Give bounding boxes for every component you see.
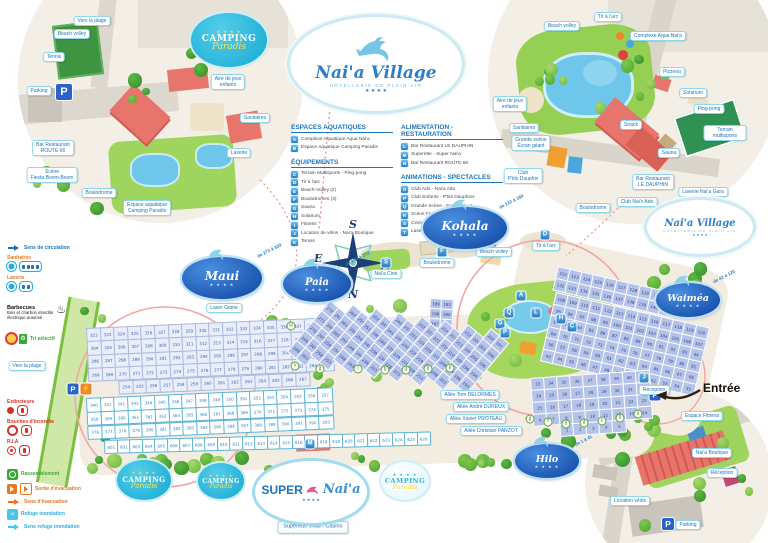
marker-g: G: [496, 320, 505, 329]
marker-l: L: [532, 309, 541, 318]
map-label: Espace Fitness: [681, 411, 723, 421]
naia-village-map: S E O N Nai'a Village HÔTELLERIE DE PLEI…: [0, 0, 768, 543]
zone-name: Kohala: [441, 219, 488, 233]
map-label: Laser Game: [206, 303, 242, 313]
tree: [646, 79, 656, 89]
pitch-cell: 357: [317, 387, 333, 402]
tree: [235, 451, 249, 465]
map-label: Bar Restaurant ROUTE 66: [32, 140, 74, 156]
tri-label: Tri sélectif: [30, 336, 55, 342]
legend-column-1: ESPACES AQUATIQUESAComplexe Aquatique Aq…: [291, 124, 393, 253]
row-letter: b: [381, 366, 390, 375]
sens-evacuation-arrow-icon: [7, 498, 21, 506]
marker-q: Q: [505, 309, 514, 318]
legend-letter-chip: N: [401, 160, 408, 167]
pitch-cell: 393: [318, 415, 334, 430]
legend-letter-chip: F: [291, 196, 298, 203]
map-label: Sanitaires: [509, 123, 539, 133]
recycle-bin-icon: ♻: [19, 334, 27, 344]
legend-section-title: ÉQUIPEMENTS: [291, 159, 393, 168]
pitch-cell: 55: [680, 381, 696, 397]
map-label: Tennis: [43, 52, 65, 62]
legend-item-label: Terrain Multisports - Ping-pong: [301, 171, 366, 176]
map-label: Sanitaires: [240, 113, 270, 123]
map-label: Club P'tits Dauphin: [504, 168, 543, 184]
camping-paradis-badge: ★ ★ ★ ★ CAMPING Paradis: [191, 13, 267, 67]
tree: [694, 490, 706, 502]
marker-h: H: [557, 315, 566, 324]
legend-item: IFitness: [291, 222, 393, 229]
map-label: Réception: [639, 385, 670, 395]
legend-section: ÉQUIPEMENTSCTerrain Multisports - Ping-p…: [291, 159, 393, 246]
tri-badge-icon: [7, 334, 16, 343]
legend-item-label: Tennis: [301, 239, 315, 244]
tree: [351, 452, 359, 460]
marker-m: M: [306, 440, 315, 449]
sortie-label: Sortie d'évacuation: [35, 486, 81, 492]
pitch-cell: 267: [295, 372, 311, 387]
map-label: Pizzeria: [659, 67, 685, 77]
super-stars: ★ ★ ★ ★: [302, 497, 320, 502]
tree: [174, 461, 188, 475]
legend-item: OClub Ado - Nai'a Ado: [401, 186, 503, 193]
map-label: Beach volley: [476, 247, 512, 257]
naia-script: Nai'a: [323, 482, 361, 497]
map-label: Snack: [620, 120, 642, 130]
map-label: Grande scène Écran géant: [511, 135, 550, 151]
marker-a: A: [517, 292, 526, 301]
zone-oval-maui: Maui★ ★ ★ ★: [182, 257, 262, 299]
legend-item: MSuperette - Super Nai'a: [401, 152, 503, 159]
bouche-incendie-icon: [21, 425, 32, 436]
badge-subtitle: Paradis: [131, 482, 157, 490]
legend-item-label: Tir à l'arc: [301, 180, 320, 185]
row-letter: c: [598, 417, 607, 426]
legend-letter-chip: G: [291, 205, 298, 212]
rassemblement-label: Rassemblement: [21, 471, 59, 477]
dolphin-swoosh-icon: [206, 247, 228, 261]
legend-section-title: ALIMENTATION - RESTAURATION: [401, 124, 503, 140]
legend-letter-chip: I: [291, 222, 298, 229]
sanitaires-icon: [7, 262, 16, 271]
sens-refuge-arrow-icon: [7, 523, 21, 531]
tree: [464, 458, 476, 470]
map-label: Tir à l'arc: [532, 241, 560, 251]
legend-letter-chip: R: [401, 212, 408, 219]
laverie-services-icons: [19, 281, 33, 292]
zone-stars: ★ ★ ★ ★: [453, 232, 478, 237]
camping-paradis-zone-badge: ★ ★ ★ ★ CAMPING Paradis: [198, 463, 244, 499]
legend-letter-chip: E: [291, 188, 298, 195]
camping-paradis-zone-badge: ★ ★ ★ ★ CAMPING Paradis: [117, 460, 171, 500]
legend-item-label: Espace Aquatique Camping Paradis: [301, 145, 378, 150]
zone-oval-hilo: Hilo★ ★ ★ ★: [515, 444, 579, 478]
legend-item: NBar Restaurant ROUTE 66: [401, 160, 503, 167]
zone-oval-paia: Paia★ ★ ★ ★: [283, 266, 351, 302]
map-label: Laverie Nai'a Gara: [678, 187, 728, 197]
legend-item: KTennis: [291, 239, 393, 246]
entrance-label: Entrée: [703, 381, 740, 395]
zone-stars: ★ ★ ★ ★: [535, 464, 560, 469]
legend-letter-chip: A: [291, 136, 298, 143]
legend-item-label: Sauna: [301, 205, 315, 210]
map-label: Ping-pong: [694, 104, 725, 114]
marker-j: J: [640, 374, 649, 383]
legend-item-label: Bar Restaurant LE DAUPHIN: [411, 144, 473, 149]
circulation-arrow-icon: [7, 244, 21, 252]
sens-evac-label: Sens d'évacuation: [24, 499, 68, 505]
ria-icon: [19, 445, 30, 456]
row-letter: g: [316, 365, 325, 374]
map-label: Vers la plage: [74, 16, 111, 26]
row-letter: q: [424, 365, 433, 374]
row-letter: l: [354, 365, 363, 374]
logo-title: Nai'a Village: [664, 218, 735, 229]
legend-letter-chip: D: [291, 179, 298, 186]
logo-stars: ★ ★ ★ ★: [365, 88, 387, 94]
map-label: Laverie: [227, 148, 251, 158]
legend-item-label: Complexe Aquatique Aqua Nai'a: [301, 137, 370, 142]
legend-item-label: Location de vélos - Nai'a Boutique: [301, 231, 374, 236]
dolphin-swoosh-icon: [672, 273, 694, 287]
map-label: Bar Restaurant LE DAUPHIN: [632, 174, 674, 190]
tree: [545, 74, 556, 85]
bouche-incendie-dot-icon: [7, 425, 18, 436]
tree: [745, 487, 753, 495]
map-label: Parking: [676, 520, 701, 530]
barbecues-note: Bois et charbon interdits électrique aut…: [7, 311, 53, 321]
ria-dot-icon: [7, 446, 16, 455]
tree: [644, 422, 653, 431]
row-letter: e: [562, 420, 571, 429]
tree: [535, 77, 544, 86]
marker-f: F: [438, 248, 447, 257]
compass-north: N: [348, 288, 358, 301]
naia-village-logo: Nai'a Village HÔTELLERIE DE PLEIN AIR ★ …: [290, 17, 462, 111]
map-label: Terrain multisports: [704, 125, 747, 141]
legend-section-title: ANIMATIONS - SPECTACLES: [401, 174, 503, 183]
row-letter: p: [446, 364, 455, 373]
map-label: Solarium: [679, 88, 707, 98]
row-letter: v: [291, 362, 300, 371]
map-label: Tir à l'arc: [594, 12, 622, 22]
sanitaires-services-icons: [19, 261, 42, 272]
map-label: Parking: [27, 86, 52, 96]
legend-section-title: ESPACES AQUATIQUES: [291, 124, 393, 133]
legend-item-label: Fitness: [301, 222, 316, 227]
dolphin-swoosh-icon: [301, 256, 323, 270]
zone-stars: ★ ★ ★ ★: [210, 282, 235, 287]
legend-item: FBoulodromes (3): [291, 196, 393, 203]
row-letter: g: [526, 415, 535, 424]
legend-item-label: Solarium: [301, 214, 320, 219]
row-letter: f: [544, 418, 553, 427]
tree: [509, 354, 522, 367]
tree: [187, 459, 201, 473]
legend-letter-chip: M: [401, 152, 408, 159]
tree: [738, 474, 746, 482]
tree: [393, 299, 407, 313]
legend-item: GSauna: [291, 205, 393, 212]
refuge-inondation-icon: ≈: [7, 509, 18, 520]
rassemblement-icon: [7, 469, 18, 480]
parking-icon: P: [56, 84, 72, 100]
tree: [717, 437, 729, 449]
extincteur-dot-icon: [7, 407, 14, 414]
map-label: Boulodrome: [576, 203, 611, 213]
naia-village-logo-small: Nai'a Village HÔTELLERIE DE PLEIN AIR ★ …: [647, 200, 753, 254]
camping-paradis-zone-badge: ★ ★ ★ ★ CAMPING Paradis: [381, 462, 429, 500]
legend-letter-chip: S: [401, 220, 408, 227]
legend-item: HSolarium: [291, 213, 393, 220]
legend-letter-chip: J: [291, 230, 298, 237]
legend-item-label: Boulodromes (3): [301, 197, 336, 202]
barbecue-icon: ♨: [56, 305, 66, 316]
legend-letter-chip: H: [291, 213, 298, 220]
legend-section: ESPACES AQUATIQUESAComplexe Aquatique Aq…: [291, 124, 393, 152]
badge-subtitle: Paradis: [210, 483, 233, 490]
sortie-evacuation-icon2: [20, 483, 32, 495]
zone-name: Maui: [205, 269, 239, 283]
legend-item: DTir à l'arc: [291, 179, 393, 186]
alley-label: Allée Tom DELORMES: [440, 390, 499, 400]
tree: [481, 312, 490, 321]
map-label: Espace aquatique Camping Paradis: [123, 200, 171, 216]
pitch-cell: 626: [416, 431, 431, 445]
zone-stars: ★ ★ ★ ★: [676, 303, 701, 308]
super-label: SUPER: [262, 483, 303, 497]
tree: [487, 458, 495, 466]
legend-letter-chip: B: [291, 145, 298, 152]
dolphin-swoosh-icon: [531, 434, 553, 448]
zone-oval-waiméa: Waiméa★ ★ ★ ★: [656, 283, 720, 317]
row-letter: b: [616, 414, 625, 423]
map-label: Scène Fiesta Boom-Boom: [27, 167, 78, 183]
legend-item: JLocation de vélos - Nai'a Boutique: [291, 230, 393, 237]
sortie-evacuation-icon: [7, 484, 17, 494]
row-letter: d: [580, 419, 589, 428]
map-key: Sens de circulation Sanitaires Laverie B…: [7, 244, 112, 534]
legend-letter-chip: O: [401, 186, 408, 193]
circulation-label: Sens de circulation: [24, 245, 70, 251]
badge-subtitle: Paradis: [393, 483, 418, 491]
legend-letter-chip: P: [401, 195, 408, 202]
tree: [501, 459, 511, 469]
tree: [595, 102, 607, 114]
legend-item: LBar Restaurant LE DAUPHIN: [401, 143, 503, 150]
super-naia-logo: SUPER Nai'a ★ ★ ★ ★: [255, 461, 367, 523]
map-label: Complexe Aqua Nai'a: [630, 31, 686, 41]
map-label: Aire de jeux enfants: [211, 74, 245, 90]
tree: [128, 73, 142, 87]
extincteur-icon: [17, 405, 28, 416]
map-label: Beach volley: [544, 21, 580, 31]
row-letter: w: [287, 322, 296, 331]
parking-icon: P: [662, 518, 674, 530]
tree: [621, 59, 634, 72]
legend-letter-chip: K: [291, 239, 298, 246]
legend-section: ALIMENTATION - RESTAURATIONLBar Restaura…: [401, 124, 503, 167]
legend-letter-chip: T: [401, 229, 408, 236]
map-label: Aire de jeux enfants: [493, 96, 527, 112]
map-label: Club Nai's Ado: [617, 197, 658, 207]
marker-d: D: [541, 231, 550, 240]
legend-item-label: Club Ado - Nai'a Ado: [411, 187, 455, 192]
tree: [634, 55, 643, 64]
legend-item-label: Superette - Super Nai'a: [411, 152, 461, 157]
zone-oval-kohala: Kohala★ ★ ★ ★: [423, 207, 507, 249]
legend-item: EBeach-Volley (2): [291, 188, 393, 195]
map-label: Beach volley: [54, 29, 90, 39]
laverie-icon: [7, 282, 16, 291]
legend-item-label: Bar Restaurant ROUTE 66: [411, 161, 468, 166]
map-label: Nai'a Ciné: [371, 269, 402, 279]
dolphin-swoosh-icon: [449, 197, 471, 211]
map-label: Boulodrome: [420, 258, 455, 268]
alley-label: Allée André DUREUX: [453, 402, 509, 412]
sens-refuge-label: Sens refuge inondation: [24, 524, 80, 530]
map-label: Nai'a Boutique: [692, 448, 732, 458]
logo-title: Nai'a Village: [315, 63, 436, 83]
row-letter: d: [402, 366, 411, 375]
tree: [559, 76, 568, 85]
map-label: Sauna: [658, 148, 680, 158]
legend-item-label: Beach-Volley (2): [301, 188, 336, 193]
marker-p: P: [501, 329, 510, 338]
marker-c: C: [568, 323, 577, 332]
map-label: Réception: [707, 468, 738, 478]
pink-dolphin-icon: [305, 483, 321, 497]
legend-item: AComplexe Aquatique Aqua Nai'a: [291, 136, 393, 143]
map-label: Boulodrome: [82, 188, 117, 198]
legend-item: BEspace Aquatique Camping Paradis: [291, 145, 393, 152]
legend-letter-chip: Q: [401, 203, 408, 210]
logo-stars: ★ ★ ★ ★: [692, 233, 707, 237]
marker-s: S: [382, 259, 391, 268]
tree: [639, 519, 651, 531]
refuge-label: Refuge inondation: [21, 511, 65, 517]
zone-stars: ★ ★ ★ ★: [305, 287, 330, 292]
legend-letter-chip: L: [401, 143, 408, 150]
alley-label: Allée Christian PARZOT: [460, 426, 522, 436]
dolphin-icon: [354, 35, 398, 63]
legend-letter-chip: C: [291, 171, 298, 178]
row-letter: a: [634, 410, 643, 419]
legend-item: CTerrain Multisports - Ping-pong: [291, 171, 393, 178]
alley-label: Allée Xavier PROTEAU: [446, 414, 506, 424]
badge-subtitle: Paradis: [212, 42, 246, 52]
map-label: Location vélos: [610, 496, 650, 506]
pitch-cell: 375: [318, 401, 334, 416]
